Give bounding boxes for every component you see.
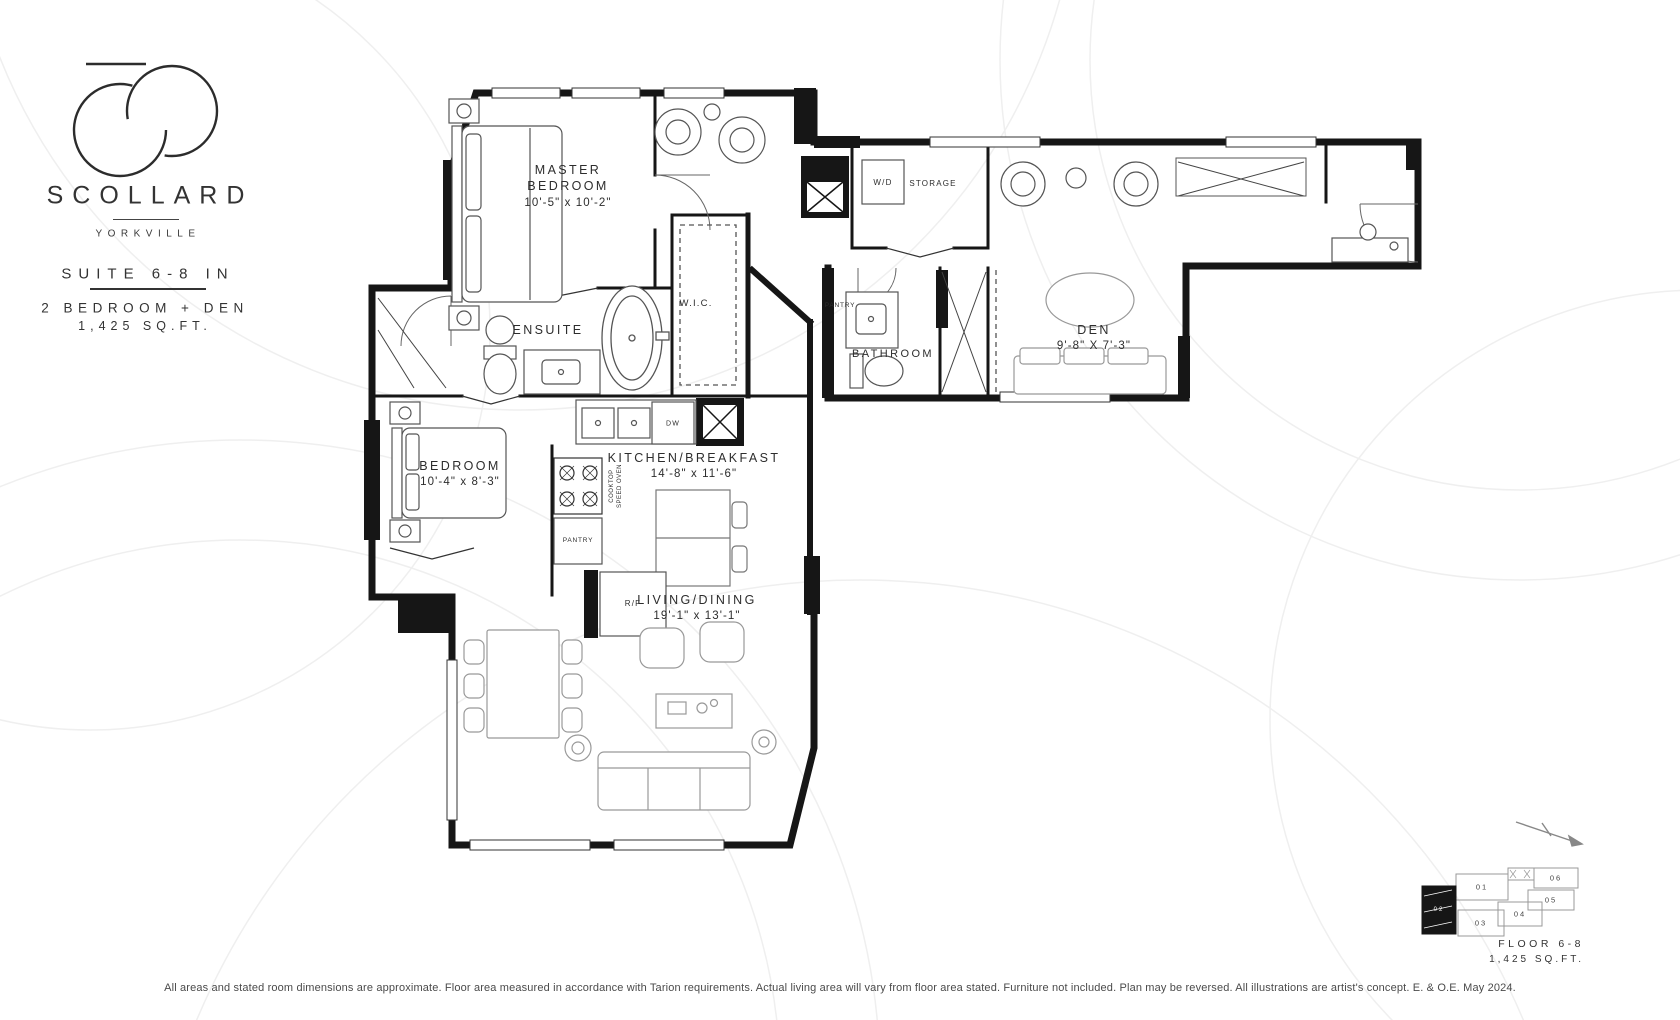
- dining-set: [464, 630, 582, 738]
- label-master-bedroom: MASTER BEDROOM 10'-5" x 10'-2": [500, 162, 636, 210]
- keyplan-unit-01: 01: [1476, 883, 1488, 892]
- foyer-chairs: [655, 104, 765, 163]
- label-rf: R/F: [625, 599, 642, 609]
- label-pantry-hall: PANTRY: [825, 302, 856, 310]
- ensuite-tub: [602, 286, 669, 390]
- label-wd: W/D: [873, 178, 892, 188]
- label-ensuite: ENSUITE: [513, 322, 584, 338]
- label-cooktop: COOKTOP SPEED OVEN: [609, 464, 625, 508]
- wing-lounge-chairs: [1001, 162, 1158, 206]
- ensuite-vanity: [524, 350, 600, 394]
- keyplan-unit-05: 05: [1545, 896, 1557, 905]
- label-storage: STORAGE: [909, 179, 956, 189]
- shaft-kitchen: [696, 398, 744, 446]
- keyplan-unit-02: 02: [1434, 907, 1445, 913]
- bathroom-vanity: [846, 292, 898, 348]
- floorplan-page: SCOLLARD YORKVILLE SUITE 6-8 IN 2 BEDROO…: [0, 0, 1680, 1020]
- kitchen-cooktop: [554, 458, 602, 514]
- keyplan-area-label: 1,425 SQ.FT.: [1489, 954, 1584, 965]
- label-kitchen: KITCHEN/BREAKFAST 14'-8" x 11'-6": [608, 450, 781, 482]
- label-wic: W.I.C.: [679, 298, 712, 310]
- living-console: [656, 694, 732, 728]
- keyplan-floor-label: FLOOR 6-8: [1498, 938, 1584, 950]
- ensuite-toilet: [484, 346, 516, 394]
- keyplan-unit-06: 06: [1550, 874, 1562, 883]
- living-armchairs: [640, 622, 744, 668]
- label-dw: DW: [666, 419, 680, 428]
- floorplan-drawing: [0, 0, 1680, 1020]
- label-bedroom: BEDROOM 10'-4" x 8'-3": [419, 458, 500, 490]
- right-room-desk: [1332, 224, 1408, 262]
- keyplan-unit-03: 03: [1475, 919, 1487, 928]
- shaft-wing: [801, 156, 849, 218]
- label-pantry-kitchen: PANTRY: [563, 537, 594, 545]
- label-bathroom: BATHROOM: [852, 347, 934, 361]
- master-bed: [449, 99, 562, 344]
- window-seat: [1176, 158, 1306, 196]
- kitchen-island: [656, 490, 747, 586]
- living-sofa: [565, 730, 776, 810]
- label-living: LIVING/DINING 19'-1" x 13'-1": [637, 592, 756, 624]
- north-arrow: [1516, 822, 1582, 846]
- keyplan-unit-04: 04: [1514, 910, 1526, 919]
- label-den: DEN 9'-8" X 7'-3": [1057, 322, 1131, 354]
- disclaimer-text: All areas and stated room dimensions are…: [0, 982, 1680, 994]
